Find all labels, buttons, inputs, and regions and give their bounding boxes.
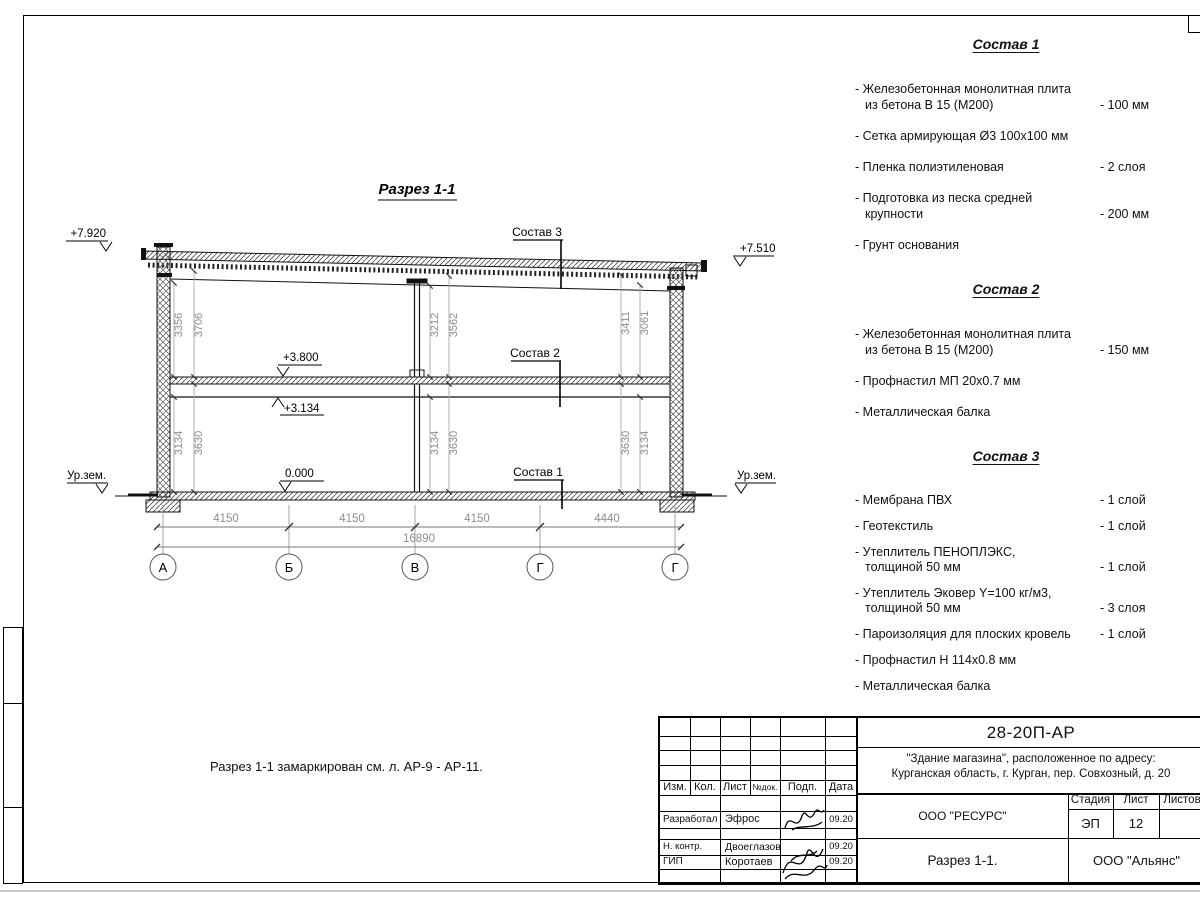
margin-cell	[3, 807, 23, 884]
svg-text:3061: 3061	[639, 311, 651, 335]
col-izm: Изм.	[660, 780, 690, 795]
spec-item: - Металлическая балка	[855, 404, 1157, 420]
col-list: Лист	[720, 780, 750, 795]
svg-text:3630: 3630	[448, 431, 460, 455]
grid-axes: А Б В Г Г	[150, 554, 688, 580]
stage-label: Стадия	[1068, 793, 1113, 809]
margin-cell	[3, 627, 23, 704]
middle-column	[407, 279, 427, 492]
callout-sostav3: Состав 3	[512, 225, 562, 239]
signature	[782, 800, 826, 836]
axis-g2: Г	[671, 560, 678, 575]
spec-group-3: Состав 3 - Мембрана ПВХ - 1 слой - Геоте…	[855, 448, 1157, 705]
spec-item: - Железобетонная монолитная плита из бет…	[855, 326, 1157, 358]
level-floor2: +3.800	[283, 352, 319, 364]
svg-text:3134: 3134	[429, 431, 441, 455]
sheet-label: Лист	[1113, 793, 1159, 809]
ground-slab	[115, 492, 727, 512]
spec-group-2: Состав 2 - Железобетонная монолитная пли…	[855, 281, 1157, 435]
spec-item: - Утеплитель Эковер Y=100 кг/м3, толщино…	[855, 586, 1157, 616]
col-ndok: №док.	[750, 780, 780, 795]
callout-sostav2: Состав 2	[510, 346, 560, 360]
row-name: Коротаев	[722, 855, 783, 869]
spec-item: - Геотекстиль - 1 слой	[855, 519, 1157, 534]
svg-text:4150: 4150	[339, 513, 365, 525]
total-dimension: 16890	[403, 533, 435, 545]
row-role: ГИП	[660, 855, 723, 869]
margin-cell	[3, 703, 23, 808]
spec-item: - Подготовка из песка средней крупности …	[855, 190, 1157, 222]
axis-b: Б	[285, 560, 294, 575]
row-name: Эфрос	[722, 811, 783, 828]
drawing-note: Разрез 1-1 замаркирован см. л. АР-9 - АР…	[210, 759, 483, 774]
col-kol: Кол.	[690, 780, 720, 795]
axis-v: В	[411, 560, 420, 575]
spec-item: - Пленка полиэтиленовая - 2 слоя	[855, 159, 1157, 175]
ground-level-right: Ур.зем.	[737, 470, 776, 482]
row-role: Н. контр.	[660, 839, 723, 855]
spec-group-1: Состав 1 - Железобетонная монолитная пли…	[855, 36, 1157, 268]
svg-text:3630: 3630	[620, 431, 632, 455]
spec-item: - Сетка армирующая Ø3 100х100 мм	[855, 128, 1157, 144]
spec-title: Состав 2	[855, 281, 1157, 300]
stage-value: ЭП	[1068, 809, 1113, 838]
svg-text:3356: 3356	[173, 313, 185, 337]
spec-item: - Профнастил МП 20х0.7 мм	[855, 373, 1157, 389]
svg-text:3134: 3134	[639, 431, 651, 455]
svg-text:3630: 3630	[193, 431, 205, 455]
floor2-slab	[170, 377, 670, 384]
spec-title: Состав 1	[855, 36, 1157, 55]
sheet-edge-shadow	[0, 890, 1200, 892]
corner-box	[1188, 15, 1200, 33]
signature	[779, 839, 831, 884]
col-podp: Подп.	[780, 780, 825, 795]
spec-title: Состав 3	[855, 448, 1157, 467]
drawing-sheet: Разрез 1-1	[0, 0, 1200, 900]
row-name: Двоеглазов	[722, 839, 783, 855]
axis-a: А	[159, 560, 168, 575]
spec-item: - Пароизоляция для плоских кровель - 1 с…	[855, 627, 1157, 642]
bottom-dimensions: 4150 4150 4150 4440 16890	[157, 505, 681, 554]
spec-item: - Профнастил Н 114х0.8 мм	[855, 653, 1157, 668]
col-data: Дата	[825, 780, 857, 795]
left-wall	[154, 243, 173, 497]
sheets-label: Листов	[1159, 793, 1200, 809]
spec-item: - Железобетонная монолитная плита из бет…	[855, 81, 1157, 113]
drawing-name: Разрез 1-1.	[857, 838, 1068, 883]
spec-item: - Грунт основания	[855, 237, 1157, 253]
level-floor1: 0.000	[285, 468, 314, 480]
spec-item: - Утеплитель ПЕНОПЛЭКС, толщиной 50 мм -…	[855, 545, 1157, 575]
svg-text:3212: 3212	[429, 313, 441, 337]
footing-right	[660, 500, 694, 512]
svg-text:4150: 4150	[464, 513, 490, 525]
doc-code: 28-20П-АР	[857, 718, 1200, 747]
ground-level-left: Ур.зем.	[67, 470, 106, 482]
svg-text:3411: 3411	[620, 311, 632, 335]
spec-item: - Мембрана ПВХ - 1 слой	[855, 493, 1157, 508]
section-drawing: Разрез 1-1	[40, 165, 830, 605]
roof-slab	[141, 248, 707, 291]
spec-item: - Металлическая балка	[855, 679, 1157, 694]
level-beam: +3.134	[284, 403, 320, 415]
callout-sostav1: Состав 1	[513, 465, 563, 479]
svg-text:3562: 3562	[448, 313, 460, 337]
svg-text:3134: 3134	[173, 431, 185, 455]
row-role: Разработал	[660, 811, 723, 828]
org-name: ООО "РЕСУРС"	[857, 793, 1068, 838]
svg-text:4440: 4440	[594, 513, 620, 525]
level-top-left: +7.920	[71, 228, 107, 240]
company-name: ООО "Альянс"	[1068, 838, 1200, 883]
sheet-number: 12	[1113, 809, 1159, 838]
svg-text:3706: 3706	[193, 313, 205, 337]
axis-g1: Г	[536, 560, 543, 575]
roof-edge-left	[141, 248, 146, 260]
roof-edge-right	[701, 260, 707, 272]
svg-text:4150: 4150	[213, 513, 239, 525]
object-description: "Здание магазина", расположенное по адре…	[857, 752, 1200, 782]
section-title: Разрез 1-1	[378, 181, 455, 198]
level-top-right: +7.510	[740, 243, 776, 255]
row-date: 09.20	[825, 811, 857, 828]
